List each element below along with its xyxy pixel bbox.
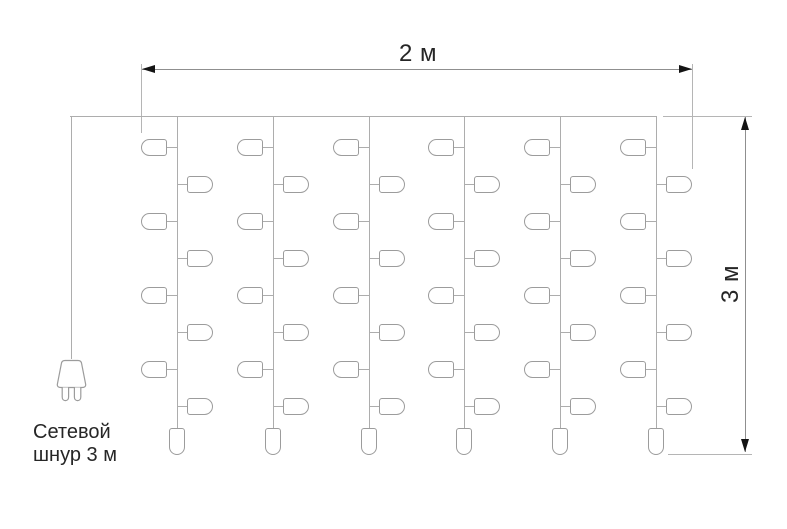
cord-caption: Сетевой шнур 3 м: [33, 421, 117, 467]
drop-wire: [464, 116, 465, 428]
light-bulb: [666, 324, 692, 341]
bulb-stem: [263, 147, 273, 148]
power-plug-icon: [55, 357, 88, 404]
bulb-stem: [177, 406, 187, 407]
light-bulb: [379, 324, 405, 341]
light-bulb: [141, 213, 167, 230]
light-bulb: [620, 287, 646, 304]
light-bulb: [428, 361, 454, 378]
bulb-stem: [359, 295, 369, 296]
bulb-stem: [454, 369, 464, 370]
light-bulb: [428, 287, 454, 304]
bulb-stem: [550, 221, 560, 222]
height-extension-line-bottom: [668, 454, 752, 455]
bulb-stem: [464, 184, 474, 185]
light-bulb: [237, 361, 263, 378]
light-bulb: [379, 398, 405, 415]
bulb-stem: [167, 147, 177, 148]
light-bulb: [187, 398, 213, 415]
width-dimension-label: 2 м: [368, 40, 468, 68]
light-bulb: [265, 428, 281, 455]
light-bulb: [620, 361, 646, 378]
bulb-stem: [550, 147, 560, 148]
width-dimension-line: [142, 69, 692, 70]
bulb-stem: [454, 221, 464, 222]
height-dimension-line: [745, 117, 746, 452]
light-bulb: [474, 324, 500, 341]
light-bulb: [474, 398, 500, 415]
bulb-stem: [167, 295, 177, 296]
bulb-stem: [273, 332, 283, 333]
light-bulb: [283, 324, 309, 341]
curtain-lights-diagram: 2 м 3 м Сетевой шнур 3 м: [0, 0, 787, 529]
drop-wire: [369, 116, 370, 428]
bulb-stem: [560, 258, 570, 259]
height-extension-line-top: [663, 116, 752, 117]
bulb-stem: [273, 258, 283, 259]
bulb-stem: [464, 258, 474, 259]
light-bulb: [570, 250, 596, 267]
bulb-stem: [263, 295, 273, 296]
light-bulb: [333, 287, 359, 304]
bulb-stem: [560, 332, 570, 333]
light-bulb: [428, 139, 454, 156]
bulb-stem: [656, 258, 666, 259]
bulb-stem: [273, 406, 283, 407]
cord-caption-line1: Сетевой: [33, 421, 117, 444]
drop-wire: [177, 116, 178, 428]
bulb-stem: [167, 221, 177, 222]
light-bulb: [552, 428, 568, 455]
light-bulb: [169, 428, 185, 455]
bulb-stem: [646, 147, 656, 148]
width-extension-line-left: [141, 64, 142, 133]
bulb-stem: [550, 295, 560, 296]
arrow-down-icon: [741, 439, 749, 452]
light-bulb: [620, 213, 646, 230]
bulb-stem: [560, 406, 570, 407]
light-bulb: [379, 250, 405, 267]
bulb-stem: [359, 221, 369, 222]
light-bulb: [570, 324, 596, 341]
bulb-stem: [454, 147, 464, 148]
bulb-stem: [656, 406, 666, 407]
arrow-right-icon: [679, 65, 692, 73]
cord-caption-line2: шнур 3 м: [33, 444, 117, 467]
light-bulb: [333, 139, 359, 156]
top-wire: [70, 116, 657, 117]
light-bulb: [620, 139, 646, 156]
bulb-stem: [646, 221, 656, 222]
light-bulb: [570, 398, 596, 415]
light-bulb: [361, 428, 377, 455]
light-bulb: [474, 176, 500, 193]
light-bulb: [379, 176, 405, 193]
power-cord: [71, 116, 72, 359]
bulb-stem: [464, 332, 474, 333]
light-bulb: [333, 361, 359, 378]
light-bulb: [237, 213, 263, 230]
light-bulb: [333, 213, 359, 230]
light-bulb: [456, 428, 472, 455]
bulb-stem: [263, 221, 273, 222]
drop-wire: [656, 116, 657, 428]
light-bulb: [187, 250, 213, 267]
light-bulb: [237, 139, 263, 156]
bulb-stem: [550, 369, 560, 370]
drop-wire: [273, 116, 274, 428]
bulb-stem: [177, 184, 187, 185]
light-bulb: [283, 398, 309, 415]
arrow-left-icon: [142, 65, 155, 73]
bulb-stem: [454, 295, 464, 296]
light-bulb: [666, 398, 692, 415]
light-bulb: [283, 176, 309, 193]
bulb-stem: [369, 406, 379, 407]
light-bulb: [283, 250, 309, 267]
light-bulb: [141, 287, 167, 304]
light-bulb: [666, 250, 692, 267]
bulb-stem: [369, 332, 379, 333]
bulb-stem: [273, 184, 283, 185]
light-bulb: [524, 361, 550, 378]
light-bulb: [524, 287, 550, 304]
light-bulb: [237, 287, 263, 304]
light-bulb: [187, 176, 213, 193]
bulb-stem: [369, 184, 379, 185]
bulb-stem: [359, 147, 369, 148]
bulb-stem: [656, 332, 666, 333]
bulb-stem: [167, 369, 177, 370]
bulb-stem: [560, 184, 570, 185]
light-bulb: [141, 139, 167, 156]
light-bulb: [187, 324, 213, 341]
bulb-stem: [656, 184, 666, 185]
bulb-stem: [177, 258, 187, 259]
light-bulb: [570, 176, 596, 193]
height-dimension-label: 3 м: [717, 234, 745, 334]
bulb-stem: [177, 332, 187, 333]
bulb-stem: [263, 369, 273, 370]
bulb-stem: [646, 369, 656, 370]
light-bulb: [666, 176, 692, 193]
light-bulb: [474, 250, 500, 267]
light-bulb: [428, 213, 454, 230]
bulb-stem: [646, 295, 656, 296]
bulb-stem: [369, 258, 379, 259]
light-bulb: [141, 361, 167, 378]
drop-wire: [560, 116, 561, 428]
arrow-up-icon: [741, 117, 749, 130]
light-bulb: [524, 139, 550, 156]
light-bulb: [524, 213, 550, 230]
bulb-stem: [359, 369, 369, 370]
light-bulb: [648, 428, 664, 455]
bulb-stem: [464, 406, 474, 407]
